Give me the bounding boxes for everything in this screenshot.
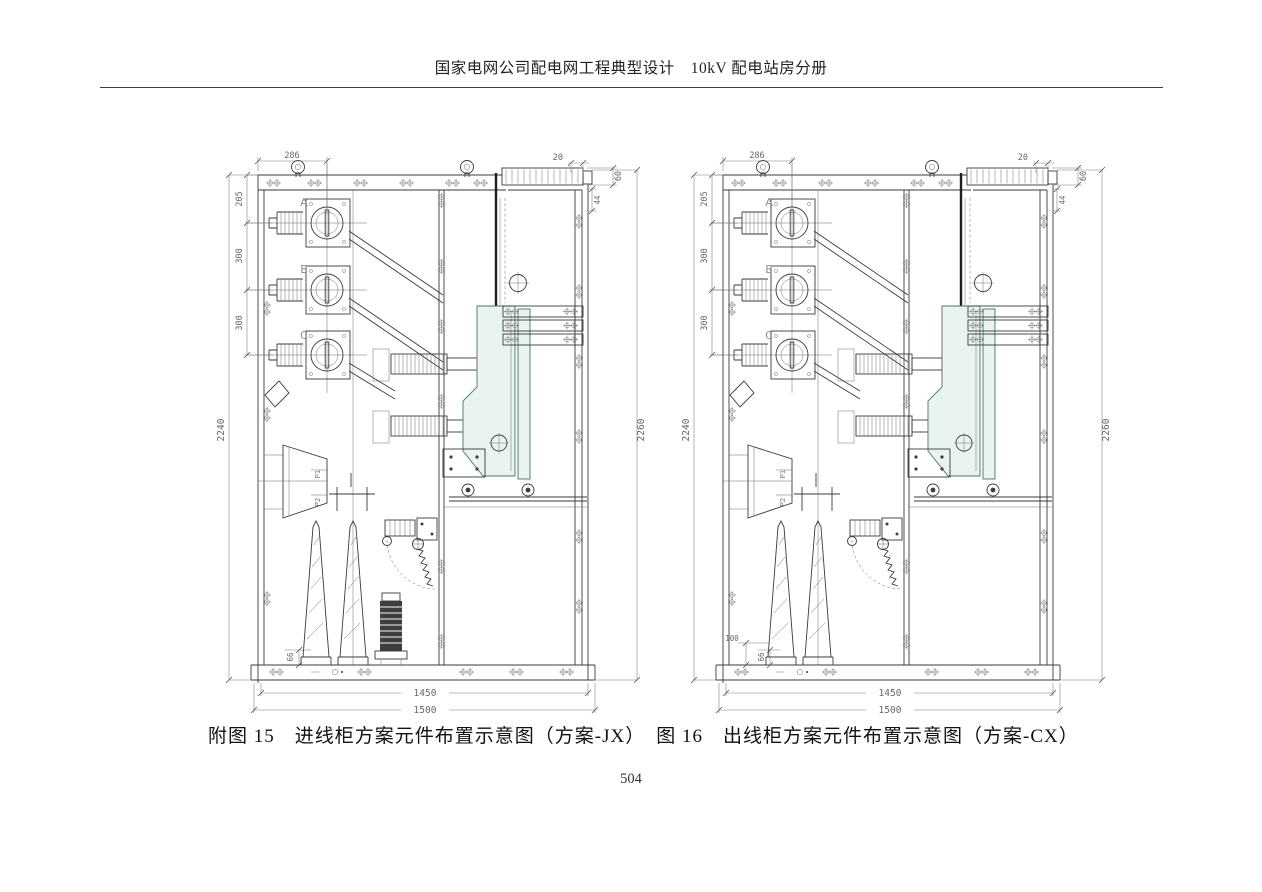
dim-phase-bc-gap: 300 [235,315,245,330]
top-rail-bolts [731,179,953,187]
caption-incoming-cabinet: 附图 15 进线柜方案元件布置示意图（方案-JX） [208,721,641,748]
cable-connection-pads [503,272,583,345]
post-insulators [766,521,833,665]
ct-terminal-p1: P1 [779,470,787,479]
base-bolts [734,668,1039,676]
ct-terminal-p2: P2 [314,498,322,507]
lifting-eye [757,161,939,178]
top-rail-bolts [266,179,488,187]
caption-outgoing-cabinet: 图 16 出线柜方案元件布置示意图（方案-CX） [651,721,1084,748]
page-number: 504 [0,771,1262,788]
ct-terminal-p2: P2 [779,498,787,507]
phase-label-c: C [300,329,308,342]
surge-arrester [375,593,407,665]
figure-outgoing-cabinet: A B C [680,143,1113,717]
dim-height-right: 2260 [636,418,647,441]
dim-overall-width: 1500 [879,705,902,716]
dim-overall-width: 1500 [414,705,437,716]
current-transformer: P1 P2 [258,445,375,518]
dim-height-left: 2240 [681,418,692,441]
post-insulators [301,521,368,665]
dim-phase-ab-gap: 300 [700,248,710,263]
dim-phase-bc-gap: 300 [700,315,710,330]
phase-label-b: B [300,263,308,276]
lifting-eye [292,161,474,178]
dim-louver-offset: 44 [593,195,602,205]
dim-top-width: 286 [749,151,764,161]
phase-bushings: A B C [710,196,908,407]
ct-terminal-p1: P1 [314,470,322,479]
dim-arrester-clearance: 100 [725,634,739,643]
dim-base-height: 66 [757,652,766,662]
dim-top-width: 286 [284,151,299,161]
dim-louver-offset: 44 [1058,195,1067,205]
top-louver-vent [502,168,592,185]
current-transformer: P1 P2 [723,445,840,518]
figure-incoming-cabinet: A B C [215,143,648,717]
phase-bushings: A B C [245,196,443,407]
dim-phase-ab-gap: 300 [235,248,245,263]
dim-louver-pitch: 20 [553,153,563,163]
phase-label-c: C [765,329,773,342]
dim-louver-height: 60 [1079,171,1089,181]
phase-label-b: B [765,263,773,276]
dim-louver-pitch: 20 [1018,153,1028,163]
cable-connection-pads [968,272,1048,345]
earthing-switch [383,518,438,589]
manual-page: 国家电网公司配电网工程典型设计 10kV 配电站房分册 [0,0,1262,892]
dim-inner-width: 1450 [879,688,902,699]
page-header-title: 国家电网公司配电网工程典型设计 10kV 配电站房分册 [0,56,1262,78]
top-louver-vent [967,168,1057,185]
dim-phase-a-offset: 205 [235,191,245,206]
dim-height-right: 2260 [1101,418,1112,441]
phase-label-a: A [765,196,773,209]
dim-inner-width: 1450 [414,688,437,699]
dim-louver-height: 60 [614,171,624,181]
dim-height-left: 2240 [216,418,227,441]
base-bolts [269,668,574,676]
dim-phase-a-offset: 205 [700,191,710,206]
dim-base-height: 66 [286,652,295,662]
earthing-switch [848,518,903,589]
phase-label-a: A [300,196,308,209]
header-rule [100,87,1163,88]
